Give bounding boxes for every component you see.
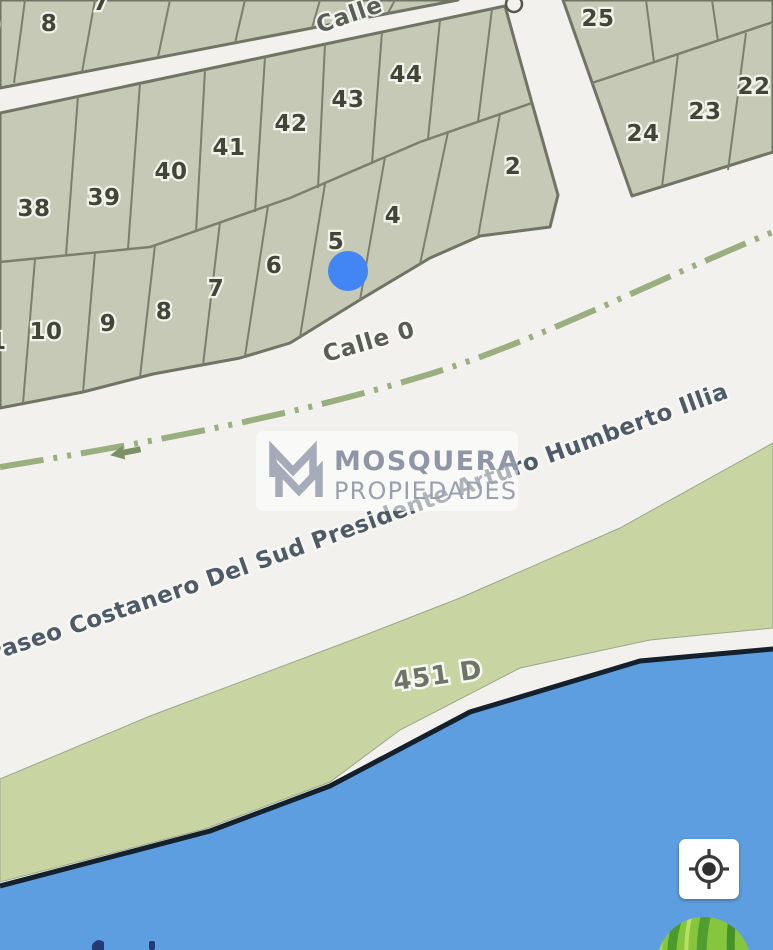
lot-label: 5 bbox=[328, 229, 345, 255]
lot-label: 8 bbox=[156, 299, 173, 325]
watermark-brand: MOSQUERA bbox=[334, 446, 520, 477]
map-canvas[interactable]: Calle Calle 0 Paseo Costanero Del Sud Pr… bbox=[0, 0, 773, 950]
lot-label: 43 bbox=[331, 87, 364, 113]
lot-label: 39 bbox=[87, 185, 120, 211]
map-svg: Calle Calle 0 Paseo Costanero Del Sud Pr… bbox=[0, 0, 773, 950]
lot-label: 2 bbox=[505, 154, 522, 180]
lot-label: 38 bbox=[17, 196, 50, 222]
lot-label: 7 bbox=[208, 276, 225, 302]
lot-label: 40 bbox=[154, 159, 187, 185]
lot-label: 44 bbox=[389, 62, 422, 88]
locate-button[interactable] bbox=[679, 839, 739, 899]
lot-label: 42 bbox=[274, 111, 307, 137]
watermark: MOSQUERA PROPIEDADES bbox=[256, 431, 520, 511]
watermark-subtitle: PROPIEDADES bbox=[334, 477, 517, 505]
lot-label: 23 bbox=[688, 99, 721, 125]
lot-label: 9 bbox=[100, 311, 117, 337]
lot-label: 10 bbox=[29, 319, 62, 345]
lot-label: 4 bbox=[385, 203, 402, 229]
lot-label: 6 bbox=[266, 253, 283, 279]
location-dot-icon[interactable] bbox=[328, 251, 368, 291]
lot-label: 41 bbox=[212, 135, 245, 161]
lot-label: 7 bbox=[93, 0, 110, 16]
lot-label: 8 bbox=[41, 11, 58, 37]
lot-label: 11 bbox=[0, 329, 7, 355]
lot-label: 24 bbox=[626, 121, 659, 147]
lot-label: 25 bbox=[581, 6, 614, 32]
lot-label: 22 bbox=[737, 74, 770, 100]
